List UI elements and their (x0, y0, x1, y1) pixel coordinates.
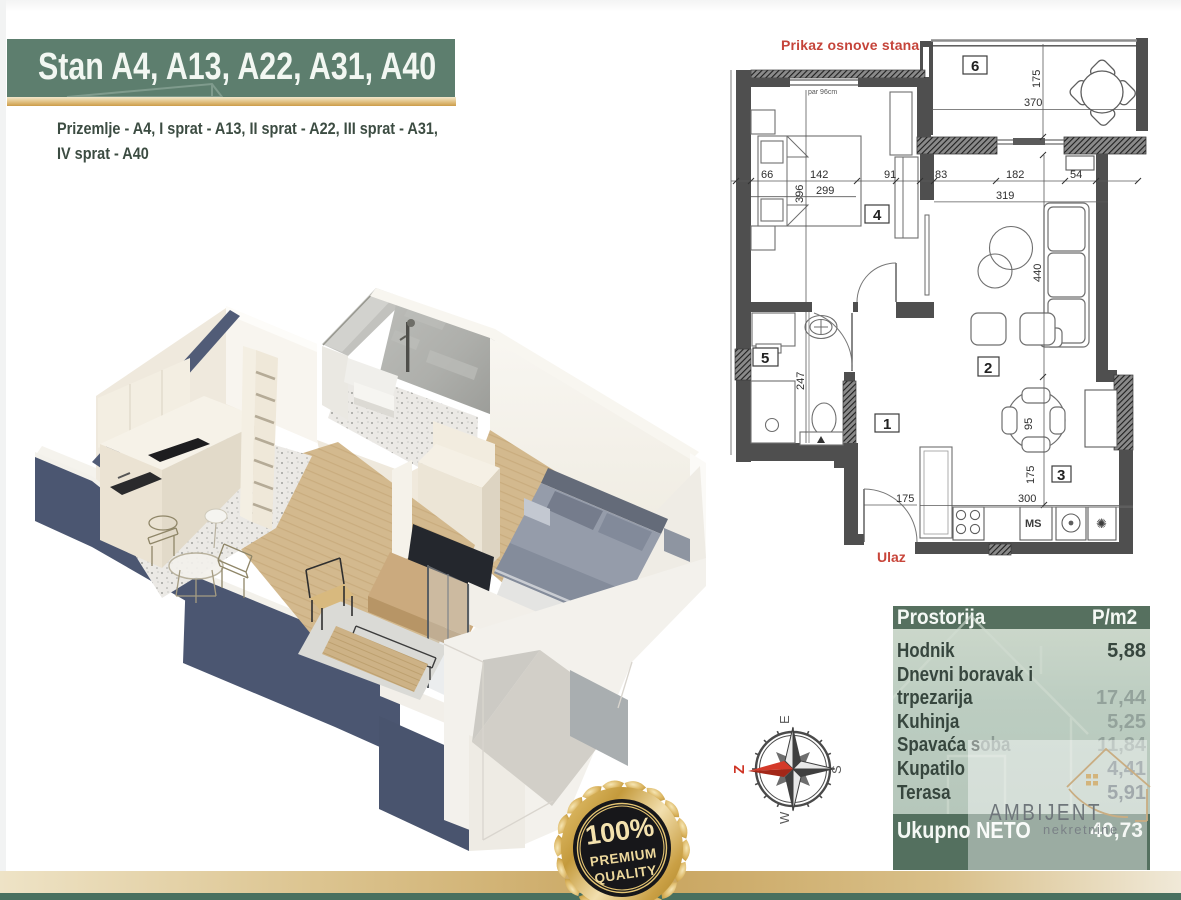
svg-text:182: 182 (1006, 169, 1024, 181)
svg-text:396: 396 (794, 185, 806, 203)
svg-text:175: 175 (896, 493, 914, 505)
svg-text:✺: ✺ (1096, 516, 1107, 531)
svg-text:4: 4 (873, 207, 882, 224)
svg-text:Ulaz: Ulaz (877, 549, 906, 565)
svg-text:MS: MS (1025, 518, 1042, 530)
svg-text:Z: Z (733, 765, 748, 774)
svg-text:247: 247 (795, 372, 807, 390)
svg-text:1: 1 (883, 416, 891, 433)
svg-text:142: 142 (810, 169, 828, 181)
svg-text:175: 175 (1025, 466, 1037, 484)
svg-text:par 96cm: par 96cm (808, 89, 837, 96)
svg-text:W: W (777, 811, 792, 824)
svg-text:Prikaz osnove stana: Prikaz osnove stana (781, 37, 919, 53)
svg-text:S: S (829, 765, 844, 774)
svg-text:91: 91 (884, 169, 896, 181)
svg-text:299: 299 (816, 185, 834, 197)
svg-text:E: E (777, 715, 792, 724)
svg-text:6: 6 (971, 58, 979, 75)
svg-text:175: 175 (1031, 70, 1043, 88)
svg-text:5: 5 (761, 350, 769, 367)
svg-text:370: 370 (1024, 97, 1042, 109)
svg-text:440: 440 (1032, 264, 1044, 282)
svg-text:300: 300 (1018, 493, 1036, 505)
svg-text:83: 83 (935, 169, 947, 181)
svg-text:3: 3 (1057, 467, 1065, 484)
svg-text:66: 66 (761, 169, 773, 181)
svg-text:2: 2 (984, 360, 992, 377)
svg-text:319: 319 (996, 190, 1014, 202)
svg-text:54: 54 (1070, 169, 1082, 181)
svg-text:95: 95 (1023, 418, 1035, 430)
